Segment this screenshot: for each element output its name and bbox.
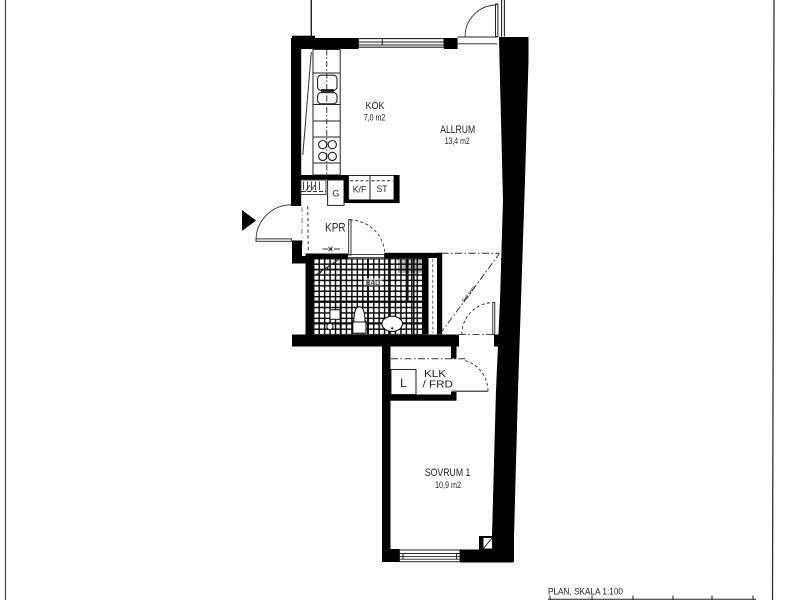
svg-text:KPR: KPR: [325, 222, 346, 234]
svg-text:ALLRUM: ALLRUM: [440, 124, 475, 136]
svg-text:BAD: BAD: [366, 278, 380, 287]
svg-text:PLAN, SKALA 1:100: PLAN, SKALA 1:100: [548, 586, 623, 596]
svg-text:/ FRD: / FRD: [423, 380, 454, 391]
svg-text:KLK: KLK: [424, 369, 446, 380]
svg-text:KÖK: KÖK: [366, 100, 385, 112]
svg-text:7,0 m2: 7,0 m2: [364, 112, 386, 122]
svg-text:ST: ST: [377, 183, 388, 194]
svg-text:SOVRUM 1: SOVRUM 1: [425, 467, 471, 479]
svg-text:10,9 m2: 10,9 m2: [435, 480, 461, 490]
svg-text:G: G: [332, 188, 339, 198]
svg-text:L: L: [400, 376, 407, 390]
svg-text:K/F: K/F: [353, 183, 367, 194]
svg-text:13,4 m2: 13,4 m2: [445, 136, 470, 146]
